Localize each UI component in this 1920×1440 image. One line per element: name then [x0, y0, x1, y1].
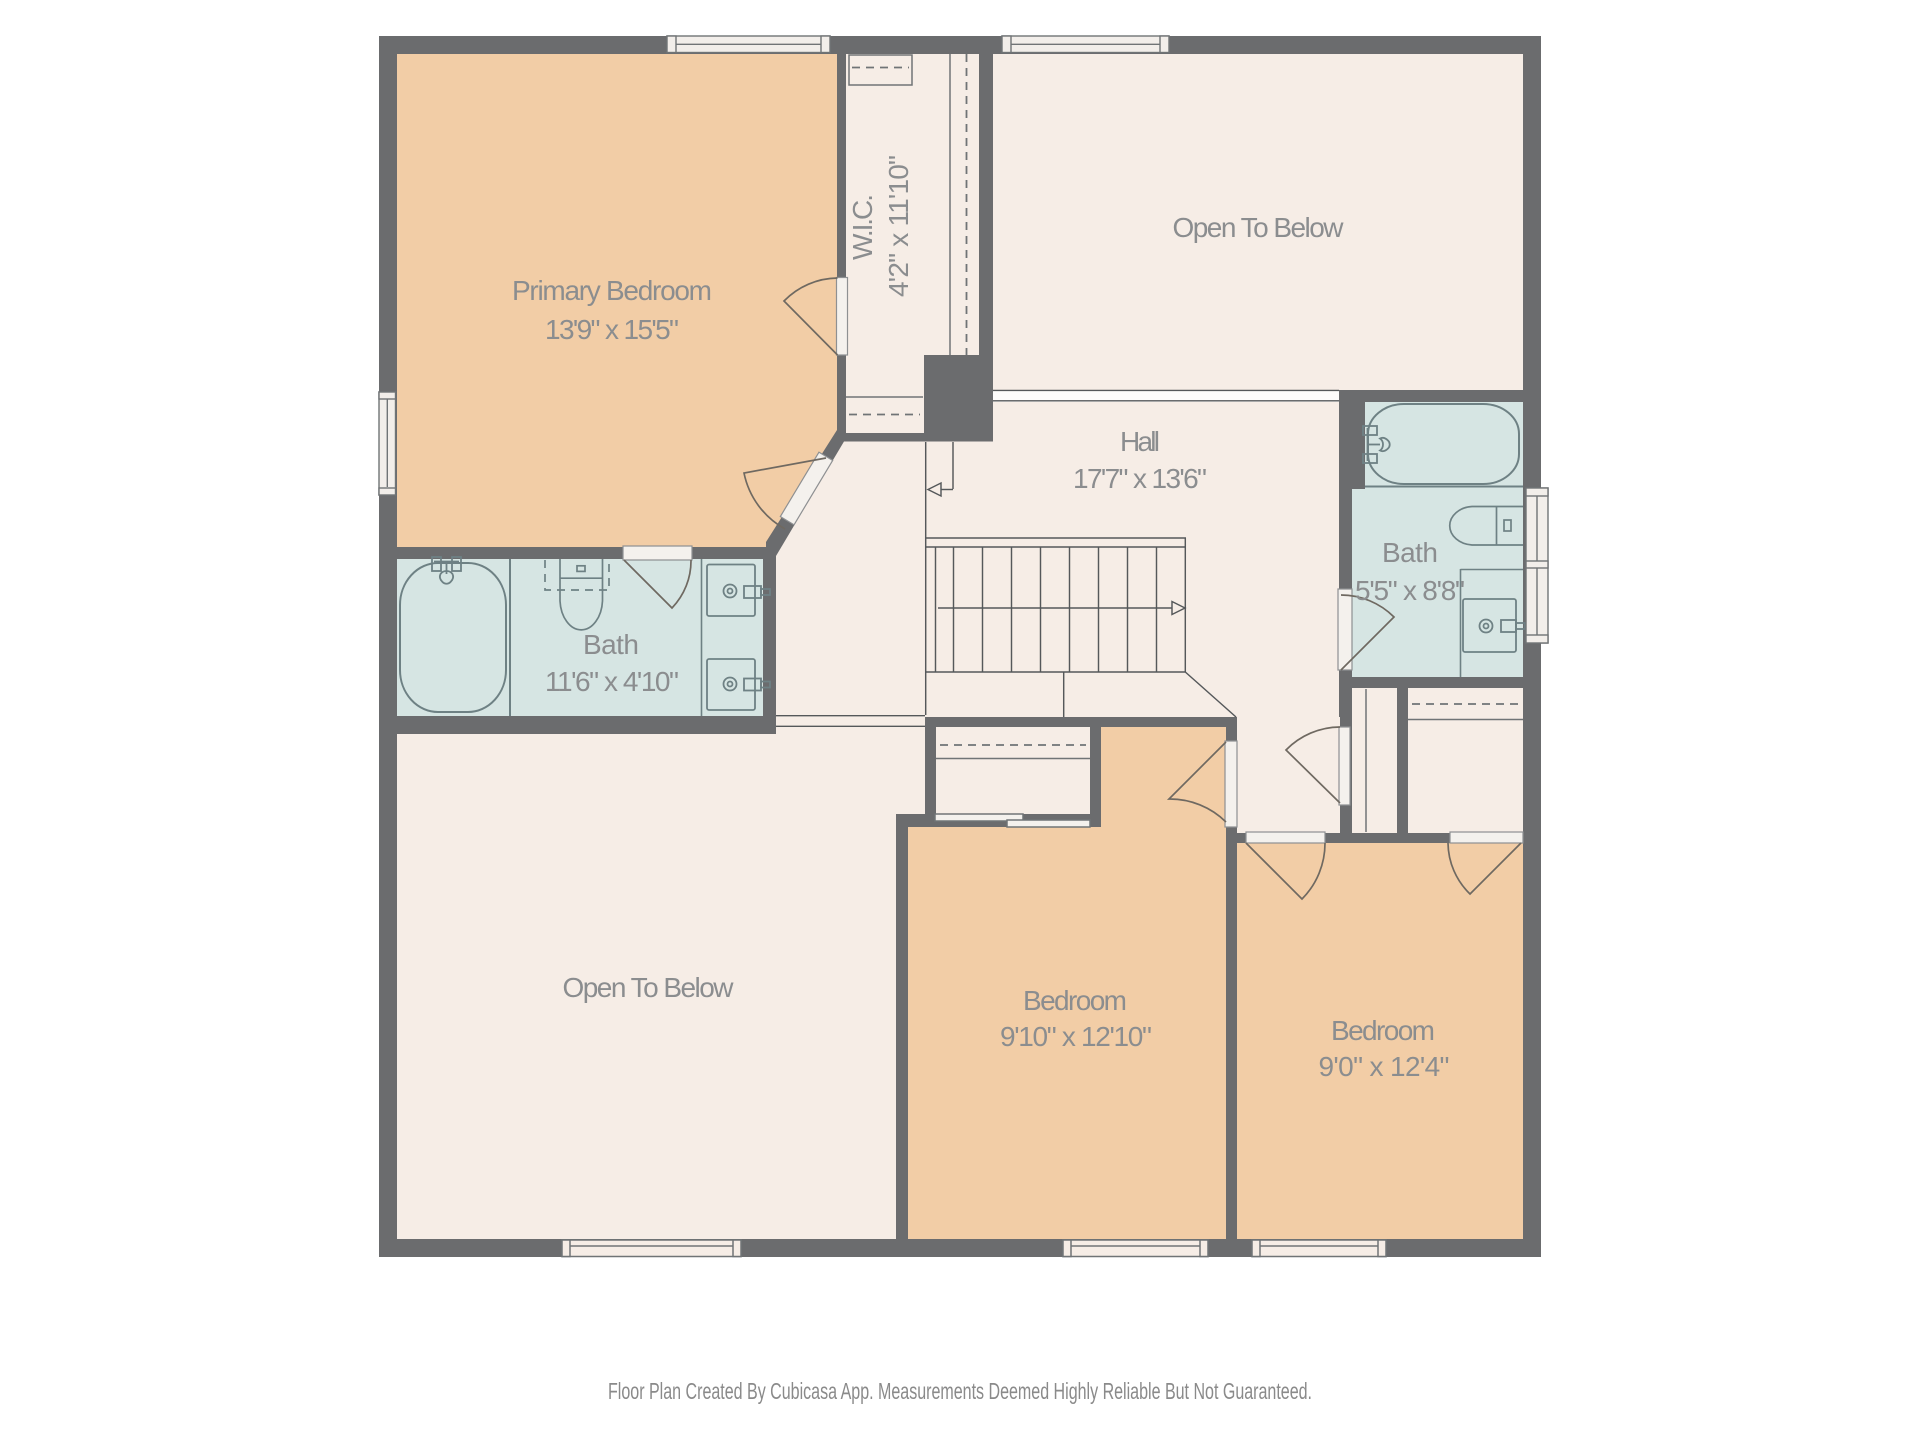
svg-text:Bath: Bath: [583, 629, 639, 660]
svg-text:9'0" x 12'4": 9'0" x 12'4": [1319, 1051, 1450, 1082]
svg-text:4'2" x 11'10": 4'2" x 11'10": [883, 155, 914, 297]
svg-text:Bedroom: Bedroom: [1331, 1015, 1435, 1046]
svg-text:13'9" x 15'5": 13'9" x 15'5": [545, 314, 679, 345]
svg-text:Bedroom: Bedroom: [1023, 985, 1127, 1016]
svg-text:Floor Plan Created By Cubicasa: Floor Plan Created By Cubicasa App. Meas…: [608, 1378, 1312, 1404]
svg-text:Primary Bedroom: Primary Bedroom: [512, 275, 712, 306]
svg-text:Open To Below: Open To Below: [563, 972, 735, 1003]
svg-text:Hall: Hall: [1120, 426, 1160, 457]
svg-text:Open To Below: Open To Below: [1173, 212, 1345, 243]
svg-text:11'6" x 4'10": 11'6" x 4'10": [545, 666, 679, 697]
svg-text:W.I.C.: W.I.C.: [847, 194, 878, 260]
svg-text:5'5" x 8'8": 5'5" x 8'8": [1355, 575, 1465, 606]
svg-text:Bath: Bath: [1382, 537, 1438, 568]
svg-text:9'10" x 12'10": 9'10" x 12'10": [1000, 1021, 1152, 1052]
svg-text:17'7" x 13'6": 17'7" x 13'6": [1073, 463, 1207, 494]
